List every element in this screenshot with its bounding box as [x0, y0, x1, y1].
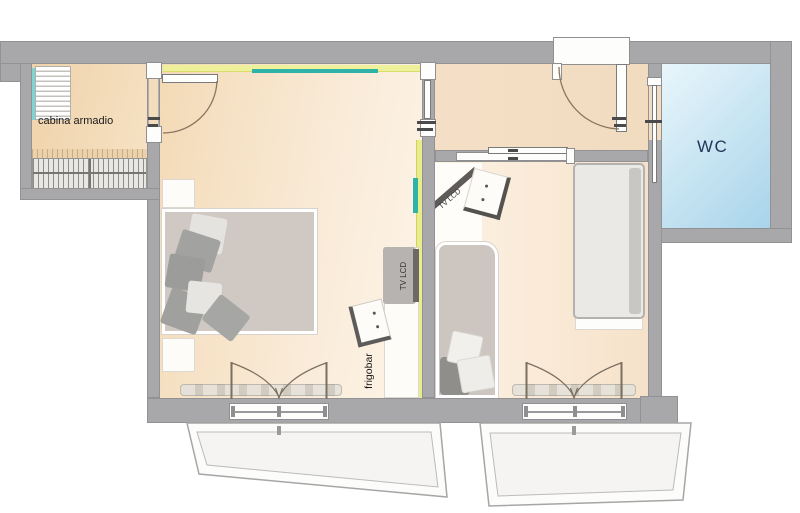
- chair-knob: [376, 325, 380, 329]
- floor-plan: cabina armadio TV LCD frigobar TV LCD: [0, 0, 800, 513]
- balcony-room1: [187, 423, 447, 497]
- chair-knob: [372, 311, 376, 315]
- sliding-door-panel: [488, 147, 568, 154]
- window-stop: [621, 406, 625, 417]
- balcony-room2: [480, 423, 691, 506]
- closet-hanger-unit: [32, 158, 147, 189]
- wc-bottom-wall: [648, 228, 792, 243]
- entrance-jamb: [552, 63, 562, 80]
- closet-shelf-unit: [35, 66, 71, 120]
- connecting-door-handle: [417, 128, 433, 131]
- connecting-door-leaf: [424, 80, 431, 119]
- wc-door-handle: [645, 120, 662, 123]
- sliding-door-handle: [508, 157, 518, 160]
- window-stop: [524, 406, 528, 417]
- top-wall: [0, 41, 792, 64]
- wc-label: WC: [697, 137, 728, 157]
- closet-hanger-strip: [32, 149, 147, 158]
- teal-strip-top: [252, 69, 378, 73]
- nightstand-top: [162, 179, 195, 208]
- teal-strip-midwall: [413, 178, 418, 213]
- nightstand-bottom: [162, 338, 195, 372]
- window-stop: [277, 406, 281, 417]
- entrance-door-handle: [612, 117, 626, 120]
- closet-door-handle: [148, 124, 158, 127]
- closet-left-wall: [20, 63, 32, 200]
- bed-pillow: [456, 354, 495, 393]
- connecting-door-handle: [417, 121, 436, 124]
- hanger-divider: [89, 159, 91, 188]
- window-stop: [323, 406, 327, 417]
- single-bed: [436, 242, 498, 398]
- tv-screen-room1: [413, 249, 419, 302]
- cabinet-knob: [481, 198, 485, 202]
- sofa-backrest: [629, 168, 641, 314]
- entrance-opening: [553, 37, 630, 65]
- closet-door-jamb: [146, 62, 162, 79]
- balcony-window-frame-room2: [522, 403, 627, 420]
- sliding-door-jamb: [566, 148, 575, 164]
- corner-pillar: [640, 396, 678, 428]
- cabinet-knob: [485, 184, 489, 188]
- sofa: [573, 163, 645, 319]
- closet-bottom-wall: [20, 188, 160, 200]
- tv-room1-label: TV LCD: [399, 246, 409, 306]
- closet-label: cabina armadio: [38, 115, 148, 127]
- entrance-door-handle: [614, 124, 626, 127]
- closet-door-leaf: [162, 74, 218, 83]
- balcony-window-frame-room1: [229, 403, 329, 420]
- closet-door-handle: [148, 117, 160, 120]
- wc-pocket-door-panel: [652, 85, 657, 183]
- double-bed: [162, 209, 317, 334]
- entrance-door-leaf: [616, 64, 627, 132]
- closet-door-jamb: [146, 126, 162, 143]
- curtain-room2: [512, 384, 636, 396]
- window-stop: [231, 406, 235, 417]
- connecting-door-jamb: [420, 62, 436, 80]
- window-stop: [573, 406, 577, 417]
- right-outer-wall: [770, 41, 792, 243]
- minibar-label: frigobar: [363, 336, 375, 406]
- sliding-door-handle: [508, 149, 518, 152]
- curtain-room1: [180, 384, 342, 396]
